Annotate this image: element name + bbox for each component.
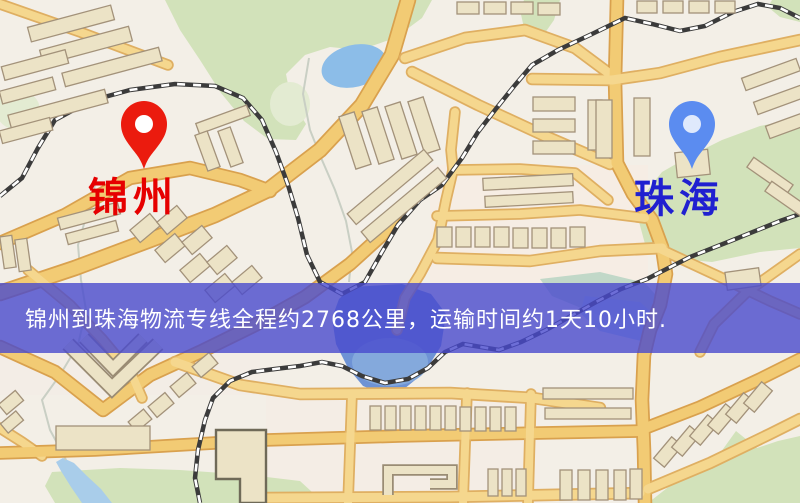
route-info-text: 锦州到珠海物流专线全程约2768公里，运输时间约1天10小时.: [25, 302, 667, 334]
pin-hole: [135, 115, 153, 133]
route-info-banner: 锦州到珠海物流专线全程约2768公里，运输时间约1天10小时.: [0, 283, 800, 353]
map-stage[interactable]: 锦州 珠海 锦州到珠海物流专线全程约2768公里，运输时间约1天10小时.: [0, 0, 800, 503]
pin-hole: [683, 115, 701, 133]
destination-pin-icon[interactable]: [667, 99, 717, 169]
destination-city-label: 珠海: [634, 179, 724, 219]
pin-shape: [669, 101, 715, 169]
map-canvas[interactable]: [0, 0, 800, 503]
origin-pin-icon[interactable]: [119, 99, 169, 169]
origin-city-label: 锦州: [88, 178, 178, 218]
pin-shape: [121, 101, 167, 169]
